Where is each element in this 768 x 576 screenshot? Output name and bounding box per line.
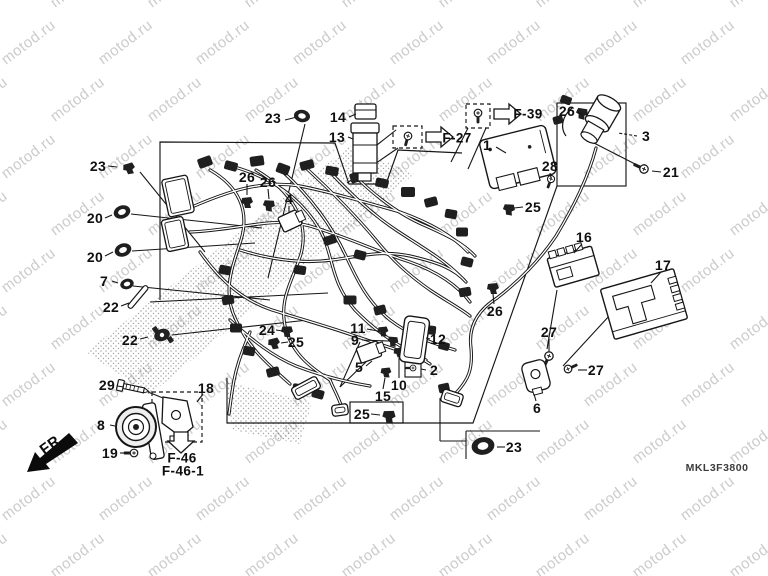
callout-26: 26 (260, 175, 276, 189)
ignition-switch-icon (576, 92, 623, 148)
diagram-canvas (0, 0, 768, 576)
ref-f27-label: F-27 (442, 130, 471, 145)
callout-10: 10 (391, 378, 407, 392)
callout-26: 26 (559, 104, 575, 118)
callout-22: 22 (122, 333, 138, 347)
ref-f46-1: F-46-1 (162, 464, 204, 478)
callout-7: 7 (100, 274, 108, 288)
ref-f27: F-27 (442, 131, 471, 145)
callout-8: 8 (97, 418, 105, 432)
parts-diagram-page: motod.rumotod.rumotod.rumotod.rumotod.ru… (0, 0, 768, 576)
callout-25: 25 (288, 335, 304, 349)
callout-23: 23 (506, 440, 522, 454)
hatch-shading (86, 146, 414, 444)
callout-20: 20 (87, 211, 103, 225)
callout-25: 25 (525, 200, 541, 214)
callout-12: 12 (430, 332, 446, 346)
callout-23: 23 (90, 159, 106, 173)
stay-bracket-icon (521, 358, 553, 396)
callout-16: 16 (576, 230, 592, 244)
callout-26: 26 (487, 304, 503, 318)
callout-26: 26 (239, 170, 255, 184)
horn-icon (116, 402, 165, 459)
coupler-12-icon (399, 315, 430, 364)
callout-22: 22 (103, 300, 119, 314)
callout-4: 4 (285, 192, 293, 206)
callout-14: 14 (330, 110, 346, 124)
callout-2: 2 (430, 363, 438, 377)
callout-27: 27 (588, 363, 604, 377)
callout-3: 3 (642, 129, 650, 143)
callout-13: 13 (329, 130, 345, 144)
relay-box-17-icon (600, 269, 687, 340)
ref-f46-1-label: F-46-1 (162, 463, 204, 478)
callout-24: 24 (259, 323, 275, 337)
callout-18: 18 (198, 381, 214, 395)
ref-f39: F-39 (513, 107, 542, 121)
diagram-part-code: MKL3F3800 (686, 462, 749, 474)
callout-23: 23 (265, 111, 281, 125)
callout-25: 25 (354, 407, 370, 421)
fuse-part-icon (351, 104, 379, 181)
callout-9: 9 (351, 333, 359, 347)
callout-19: 19 (102, 446, 118, 460)
callout-1: 1 (483, 138, 491, 152)
callout-29: 29 (99, 378, 115, 392)
callout-27: 27 (541, 325, 557, 339)
callout-6: 6 (533, 401, 541, 415)
callout-21: 21 (663, 165, 679, 179)
callout-5: 5 (355, 360, 363, 374)
callout-17: 17 (655, 258, 671, 272)
callout-15: 15 (375, 389, 391, 403)
callout-20: 20 (87, 250, 103, 264)
callout-28: 28 (542, 159, 558, 173)
ref-f39-label: F-39 (513, 106, 542, 121)
relay-box-16-icon (545, 240, 599, 287)
